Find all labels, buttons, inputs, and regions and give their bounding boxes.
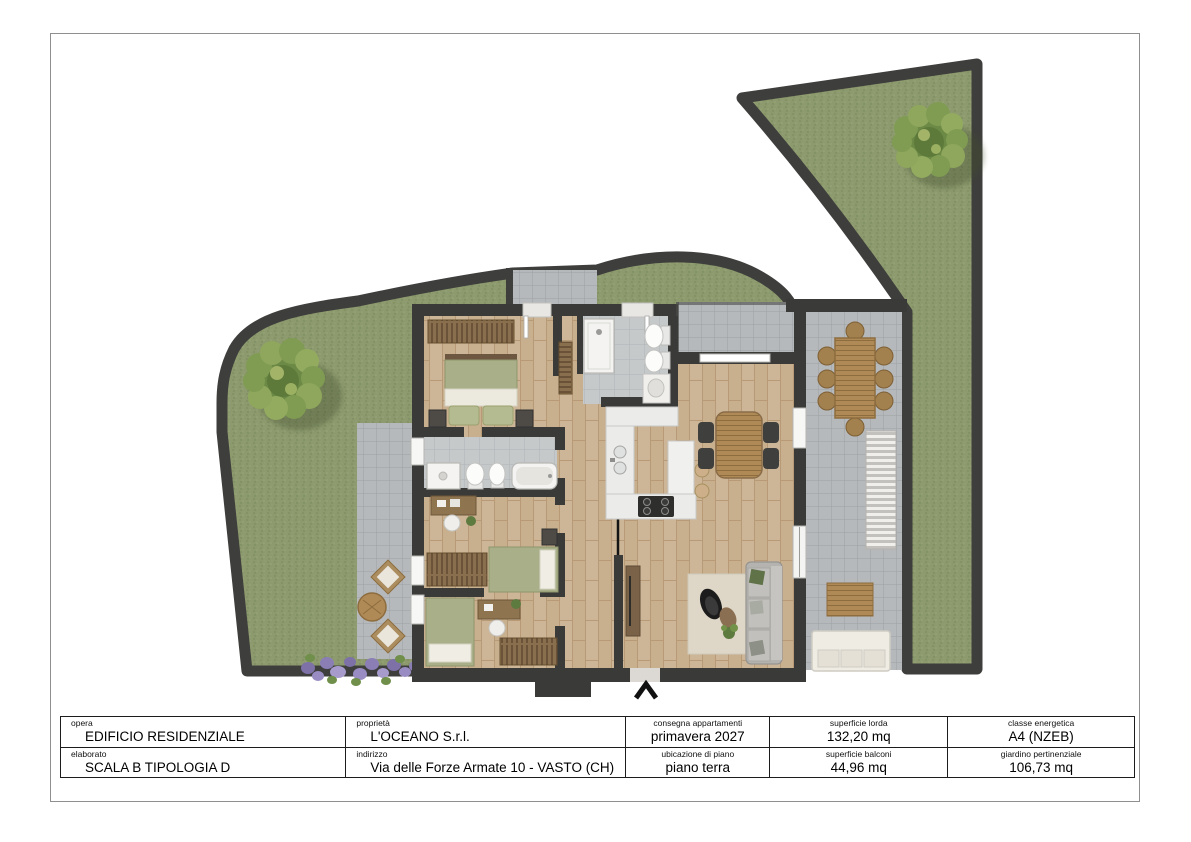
title-block-col-proprieta: proprietà L'OCEANO S.r.l. indirizzo Via … — [345, 717, 625, 777]
entrance-arrow — [636, 684, 656, 698]
plant — [511, 599, 521, 609]
bidet — [489, 463, 505, 488]
bathroom-window — [622, 303, 653, 317]
field-opera: opera EDIFICIO RESIDENZIALE — [61, 717, 345, 748]
field-consegna: consegna appartamenti primavera 2027 — [626, 717, 769, 748]
field-value: SCALA B TIPOLOGIA D — [61, 759, 345, 775]
kitchen-back-counter — [606, 407, 678, 426]
single-bed — [489, 547, 558, 592]
field-value: 106,73 mq — [948, 759, 1134, 775]
building — [411, 299, 907, 698]
wardrobe — [500, 638, 557, 665]
dining-table — [716, 412, 762, 478]
field-label: opera — [61, 717, 345, 728]
field-value: piano terra — [626, 759, 769, 775]
stove — [638, 496, 674, 517]
field-label: elaborato — [61, 748, 345, 759]
toilet — [466, 463, 484, 489]
field-label: indirizzo — [346, 748, 625, 759]
single-bed — [426, 598, 474, 666]
desk-chair — [444, 515, 460, 531]
tv-sideboard — [626, 566, 640, 636]
field-elaborato: elaborato SCALA B TIPOLOGIA D — [61, 748, 345, 778]
desk — [431, 496, 476, 515]
plant — [466, 516, 476, 526]
field-label: superficie lorda — [770, 717, 947, 728]
dining-chair — [698, 448, 714, 469]
desk-chair — [489, 620, 505, 636]
wall-stub — [535, 682, 591, 697]
field-label: consegna appartamenti — [626, 717, 769, 728]
throw-pillow — [749, 600, 763, 614]
field-value: 44,96 mq — [770, 759, 947, 775]
field-label: classe energetica — [948, 717, 1134, 728]
dining-chair — [763, 422, 779, 443]
north-terrace — [676, 302, 794, 364]
field-label: superficie balconi — [770, 748, 947, 759]
living-window-east — [793, 408, 806, 448]
nightstand — [516, 410, 533, 427]
field-giardino: giardino pertinenziale 106,73 mq — [948, 748, 1134, 778]
title-block-col-superfici: superficie lorda 132,20 mq superficie ba… — [769, 717, 947, 777]
living-room-window — [700, 354, 770, 362]
bar-stool — [695, 484, 709, 498]
bathtub — [512, 463, 557, 489]
throw-pillow — [749, 569, 765, 585]
closet-wardrobe — [559, 342, 572, 394]
title-block-col-classe: classe energetica A4 (NZEB) giardino per… — [947, 717, 1134, 777]
title-block-col-consegna: consegna appartamenti primavera 2027 ubi… — [625, 717, 769, 777]
wardrobe — [427, 553, 487, 586]
field-label: giardino pertinenziale — [948, 748, 1134, 759]
floor-plan-sheet: { "title_block": { "opera": {"label": "o… — [0, 0, 1191, 842]
field-label: ubicazione di piano — [626, 748, 769, 759]
patio-table — [358, 593, 386, 621]
field-value: primavera 2027 — [626, 728, 769, 744]
field-classe-energetica: classe energetica A4 (NZEB) — [948, 717, 1134, 748]
title-block: opera EDIFICIO RESIDENZIALE elaborato SC… — [60, 716, 1135, 778]
kitchen-island — [668, 441, 694, 494]
sofa — [746, 562, 782, 664]
dining-chair — [698, 422, 714, 443]
field-label: proprietà — [346, 717, 625, 728]
field-superficie-lorda: superficie lorda 132,20 mq — [770, 717, 947, 748]
field-indirizzo: indirizzo Via delle Forze Armate 10 - VA… — [346, 748, 625, 778]
bedroom-french-door — [523, 303, 551, 317]
title-block-col-opera: opera EDIFICIO RESIDENZIALE elaborato SC… — [61, 717, 345, 777]
shower-tray — [427, 463, 460, 489]
nightstand — [429, 410, 446, 427]
field-superficie-balconi: superficie balconi 44,96 mq — [770, 748, 947, 778]
nightstand — [542, 529, 557, 545]
wooden-deck-mat — [827, 583, 873, 616]
building-right-wall — [793, 308, 806, 670]
field-value: EDIFICIO RESIDENZIALE — [61, 728, 345, 744]
field-value: A4 (NZEB) — [948, 728, 1134, 744]
field-ubicazione: ubicazione di piano piano terra — [626, 748, 769, 778]
throw-pillow — [749, 640, 765, 656]
bidet — [645, 350, 670, 372]
toilet — [645, 324, 670, 348]
field-value: L'OCEANO S.r.l. — [346, 728, 625, 744]
outdoor-lounger — [866, 431, 896, 549]
shower — [584, 319, 614, 373]
sink — [643, 374, 670, 403]
bathroom-2 — [427, 463, 557, 489]
field-value: Via delle Forze Armate 10 - VASTO (CH) — [346, 759, 625, 775]
dining-chair — [763, 448, 779, 469]
field-value: 132,20 mq — [770, 728, 947, 744]
outdoor-sofa — [812, 631, 890, 671]
field-proprieta: proprietà L'OCEANO S.r.l. — [346, 717, 625, 748]
wardrobe — [428, 320, 514, 343]
